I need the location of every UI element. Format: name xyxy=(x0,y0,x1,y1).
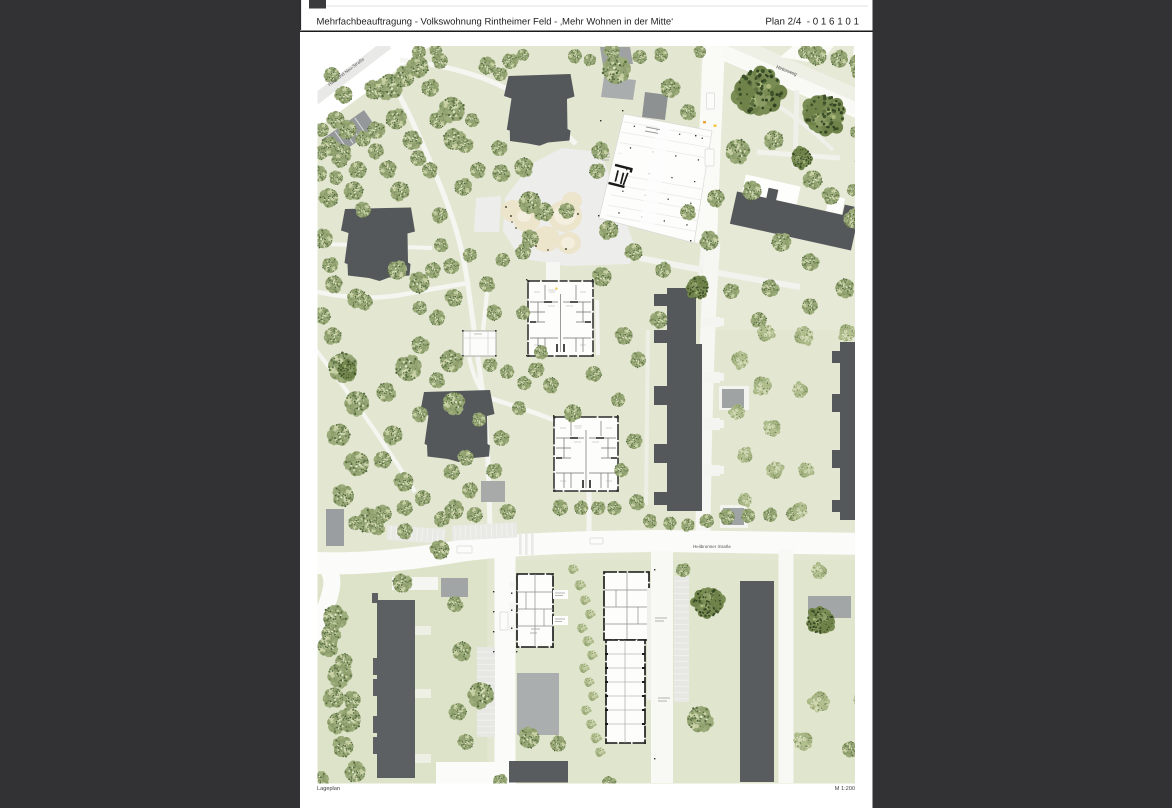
svg-text:M 1:200: M 1:200 xyxy=(835,786,855,792)
svg-text:Mehrfachbeauftragung - Volkswo: Mehrfachbeauftragung - Volkswohnung Rint… xyxy=(317,16,674,27)
svg-text:Plan 2/4 - 0 1 6 1 0 1: Plan 2/4 - 0 1 6 1 0 1 xyxy=(765,16,859,27)
svg-text:Heilbronner Straße: Heilbronner Straße xyxy=(693,544,732,549)
svg-text:Lageplan: Lageplan xyxy=(317,785,340,792)
